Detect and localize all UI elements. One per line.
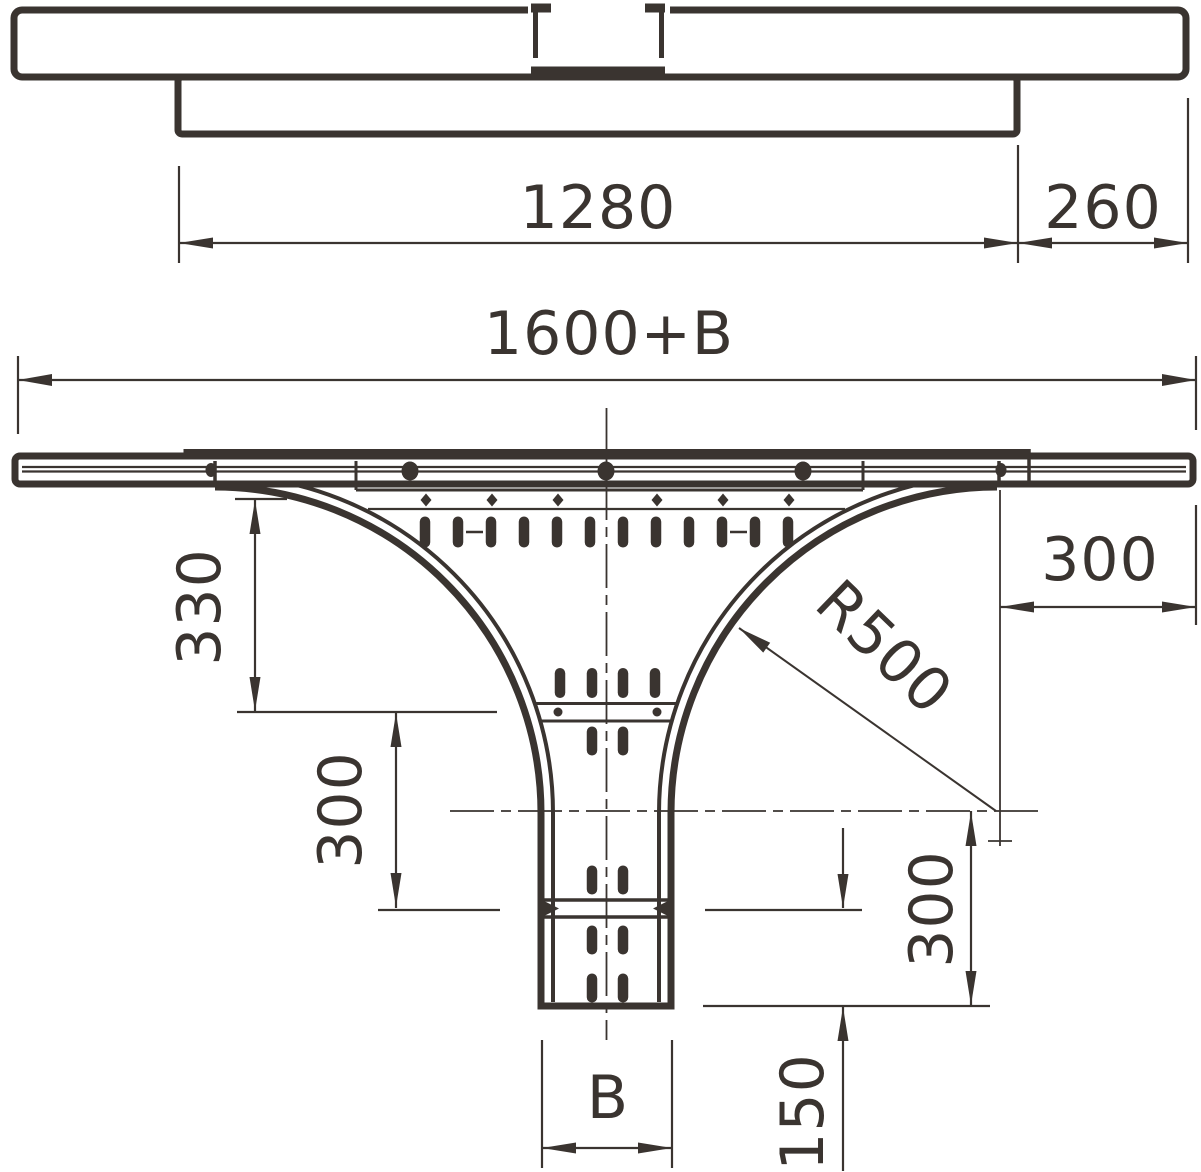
technical-drawing-page: 1280 260 1600+B [0, 0, 1201, 1172]
dim-rail-offset-label: 300 [1041, 525, 1159, 595]
dim-overall-length-label: 1600+B [484, 299, 734, 369]
dim-left-spacing-label: 300 [306, 751, 376, 869]
funnel-inner-curve-right [659, 475, 997, 813]
dim-top-length-label: 1280 [520, 173, 677, 243]
dim-left-spacing: 300 [306, 712, 402, 908]
dim-branch-width: B [542, 1040, 672, 1168]
funnel-inner-curve-left [215, 475, 553, 813]
dim-end-segment: 150 [768, 828, 849, 1171]
dim-radius: R500 [739, 567, 996, 811]
top-view-dimensions: 1280 260 [179, 98, 1188, 263]
rivet-left [206, 463, 217, 477]
plan-view [15, 408, 1193, 1040]
dim-center-drop-label: 300 [897, 850, 967, 968]
top-view [14, 0, 1186, 134]
rivet-right [996, 463, 1007, 477]
dim-branch-drop-label: 330 [165, 548, 235, 666]
coupler-tab-left [531, 4, 551, 13]
drawing-canvas: 1280 260 1600+B [0, 0, 1201, 1172]
dim-end-segment-label: 150 [768, 1053, 838, 1171]
dim-top-extension-label: 260 [1044, 173, 1162, 243]
diamond-rivets [421, 494, 795, 507]
dim-branch-drop: 330 [165, 499, 287, 712]
coupler-tab-right [645, 4, 665, 13]
plan-view-dimensions: 330 300 300 150 [165, 499, 1196, 1171]
dim-center-drop: 300 [897, 811, 977, 1006]
dim-radius-label: R500 [802, 567, 966, 729]
side-view-addon [178, 77, 1017, 134]
dim-branch-width-label: B [587, 1063, 629, 1133]
dim-rail-offset: 300 [1000, 505, 1196, 625]
